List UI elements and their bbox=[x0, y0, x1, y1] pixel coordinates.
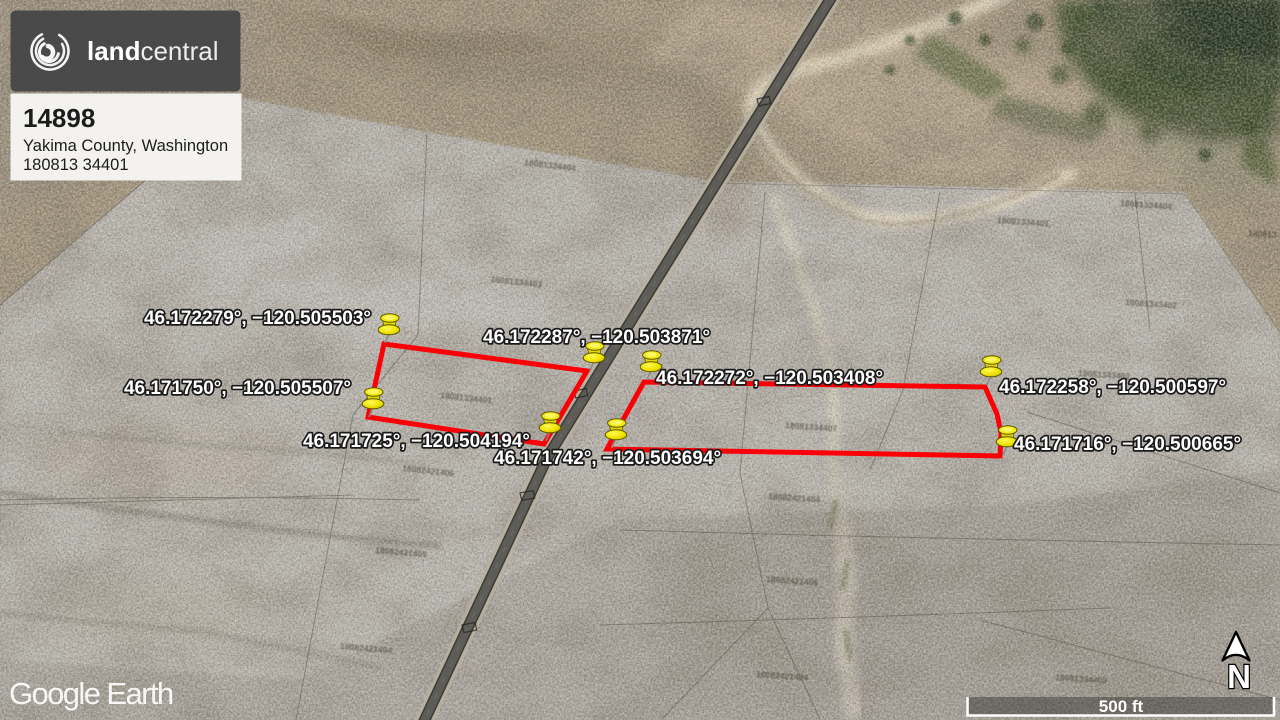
svg-text:Google Earth: Google Earth bbox=[9, 676, 173, 711]
svg-text:46.171750°, −120.505507°: 46.171750°, −120.505507° bbox=[124, 378, 351, 399]
svg-text:46.172272°, −120.503408°: 46.172272°, −120.503408° bbox=[656, 368, 883, 389]
svg-text:landcentral: landcentral bbox=[87, 36, 219, 66]
svg-text:14898: 14898 bbox=[23, 103, 95, 133]
svg-text:N: N bbox=[1227, 658, 1251, 695]
svg-text:180813 34401: 180813 34401 bbox=[23, 156, 129, 174]
svg-text:500 ft: 500 ft bbox=[1099, 697, 1144, 716]
svg-text:46.171742°, −120.503694°: 46.171742°, −120.503694° bbox=[494, 448, 721, 469]
svg-text:180813: 180813 bbox=[1248, 228, 1277, 240]
svg-text:46.171716°, −120.500665°: 46.171716°, −120.500665° bbox=[1014, 434, 1241, 455]
svg-text:46.172287°, −120.503871°: 46.172287°, −120.503871° bbox=[483, 327, 710, 348]
svg-text:Yakima County, Washington: Yakima County, Washington bbox=[23, 137, 228, 155]
svg-text:46.172258°, −120.500597°: 46.172258°, −120.500597° bbox=[999, 377, 1226, 398]
svg-text:46.172279°, −120.505503°: 46.172279°, −120.505503° bbox=[144, 308, 371, 329]
